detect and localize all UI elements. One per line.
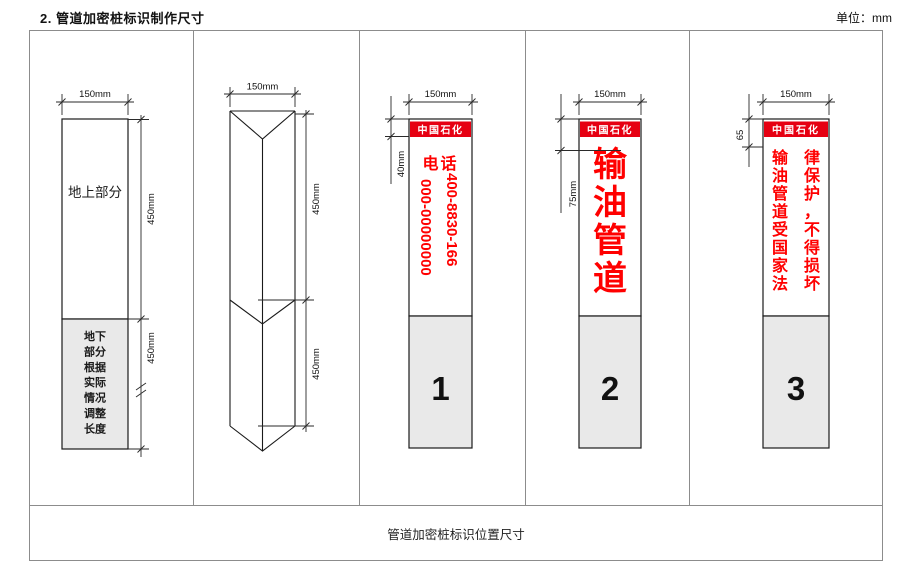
unit-label: 单位：mm (836, 9, 892, 26)
svg-text:根据: 根据 (84, 360, 106, 374)
upper-height-dim-label: 450mm (311, 183, 322, 215)
svg-text:管: 管 (593, 222, 627, 260)
warning-left-column: 输 油 管 道 受 国 家 法 (772, 148, 789, 293)
svg-text:道: 道 (772, 202, 788, 221)
svg-text:法: 法 (772, 274, 788, 293)
banner-height-dim-label: 75mm (568, 181, 579, 207)
svg-text:情况: 情况 (84, 391, 106, 405)
prism-post-drawing: 150mm 450mm 450mm (194, 31, 360, 506)
rect-post-drawing: 150mm 地上部分 地下 部分 根据 实际 情况 调整 长度 (30, 31, 194, 506)
panel-phone-marker: 150mm 中国石化 电话 000-00000000 400-8830-166 … (360, 31, 526, 505)
panel-prism-post: 150mm 450mm 450mm (194, 31, 360, 505)
svg-text:护: 护 (804, 184, 820, 203)
svg-text:损: 损 (804, 256, 820, 275)
svg-text:地下: 地下 (84, 329, 106, 343)
spec-grid: 150mm 地上部分 地下 部分 根据 实际 情况 调整 长度 (29, 30, 883, 561)
lower-height-dim-label: 450mm (311, 348, 322, 380)
pipeline-marker-drawing: 150mm 中国石化 输 油 管 道 75mm 2 (526, 31, 690, 506)
upper-height-dim-label: 450mm (146, 193, 157, 225)
svg-text:油: 油 (772, 166, 788, 185)
panel-rect-post: 150mm 地上部分 地下 部分 根据 实际 情况 调整 长度 (30, 31, 194, 505)
svg-text:部分: 部分 (84, 344, 106, 358)
width-dim-label: 150mm (425, 89, 457, 100)
svg-text:国: 国 (772, 239, 788, 257)
width-dim-label: 150mm (594, 89, 626, 100)
svg-text:道: 道 (593, 260, 627, 298)
svg-text:不: 不 (804, 222, 820, 239)
phone-number-left: 000-00000000 (417, 179, 434, 276)
page-title: 2. 管道加密桩标识制作尺寸 (40, 8, 204, 27)
brand-label: 中国石化 (418, 124, 464, 137)
banner-height-dim-label: 40mm (396, 151, 407, 177)
warning-marker-drawing: 150mm 中国石化 输 油 管 道 受 国 家 法 (690, 31, 884, 506)
svg-text:实际: 实际 (84, 375, 106, 389)
banner-height-dim-label: 65 (735, 130, 746, 141)
panel-warning-marker: 150mm 中国石化 输 油 管 道 受 国 家 法 (690, 31, 880, 505)
svg-text:输: 输 (772, 148, 789, 167)
svg-text:输: 输 (593, 146, 628, 184)
phone-number-right: 400-8830-166 (443, 173, 460, 266)
width-dim-label: 150mm (247, 82, 279, 93)
right-dim-lines (128, 115, 149, 457)
phone-label: 电话 (422, 154, 458, 173)
svg-text:得: 得 (803, 238, 820, 257)
footer-row: 管道加密桩标识位置尺寸 (30, 505, 882, 560)
svg-text:长度: 长度 (84, 421, 107, 435)
svg-text:调整: 调整 (84, 406, 106, 420)
svg-text:家: 家 (772, 256, 789, 275)
above-ground-label: 地上部分 (68, 185, 122, 200)
warning-right-column: 律 保 护 ， 不 得 损 坏 (803, 148, 821, 293)
index-number: 1 (431, 370, 449, 407)
svg-text:坏: 坏 (804, 274, 820, 293)
svg-text:受: 受 (772, 220, 788, 239)
index-number: 2 (601, 370, 619, 407)
width-dim-label: 150mm (79, 89, 111, 100)
prism-outline (230, 111, 295, 451)
spec-sheet-page: 2. 管道加密桩标识制作尺寸 单位：mm 150mm 地上部分 地下 部分 (0, 0, 904, 572)
above-ground-section (62, 119, 128, 319)
index-number: 3 (787, 370, 805, 407)
svg-text:保: 保 (803, 166, 821, 185)
panels-row: 150mm 地上部分 地下 部分 根据 实际 情况 调整 长度 (30, 31, 882, 505)
svg-text:管: 管 (772, 184, 788, 203)
pipeline-vertical-text: 输 油 管 道 (593, 146, 628, 298)
footer-label: 管道加密桩标识位置尺寸 (387, 524, 525, 543)
brand-label: 中国石化 (587, 124, 633, 137)
svg-text:，: ， (804, 204, 820, 221)
svg-text:律: 律 (804, 148, 820, 167)
svg-text:油: 油 (593, 184, 627, 222)
width-dim-label: 150mm (780, 89, 812, 100)
right-dim-lines (258, 110, 314, 432)
brand-label: 中国石化 (772, 124, 820, 137)
lower-height-dim-label: 450mm (146, 332, 157, 364)
panel-pipeline-marker: 150mm 中国石化 输 油 管 道 75mm 2 (526, 31, 690, 505)
phone-marker-drawing: 150mm 中国石化 电话 000-00000000 400-8830-166 … (360, 31, 526, 506)
